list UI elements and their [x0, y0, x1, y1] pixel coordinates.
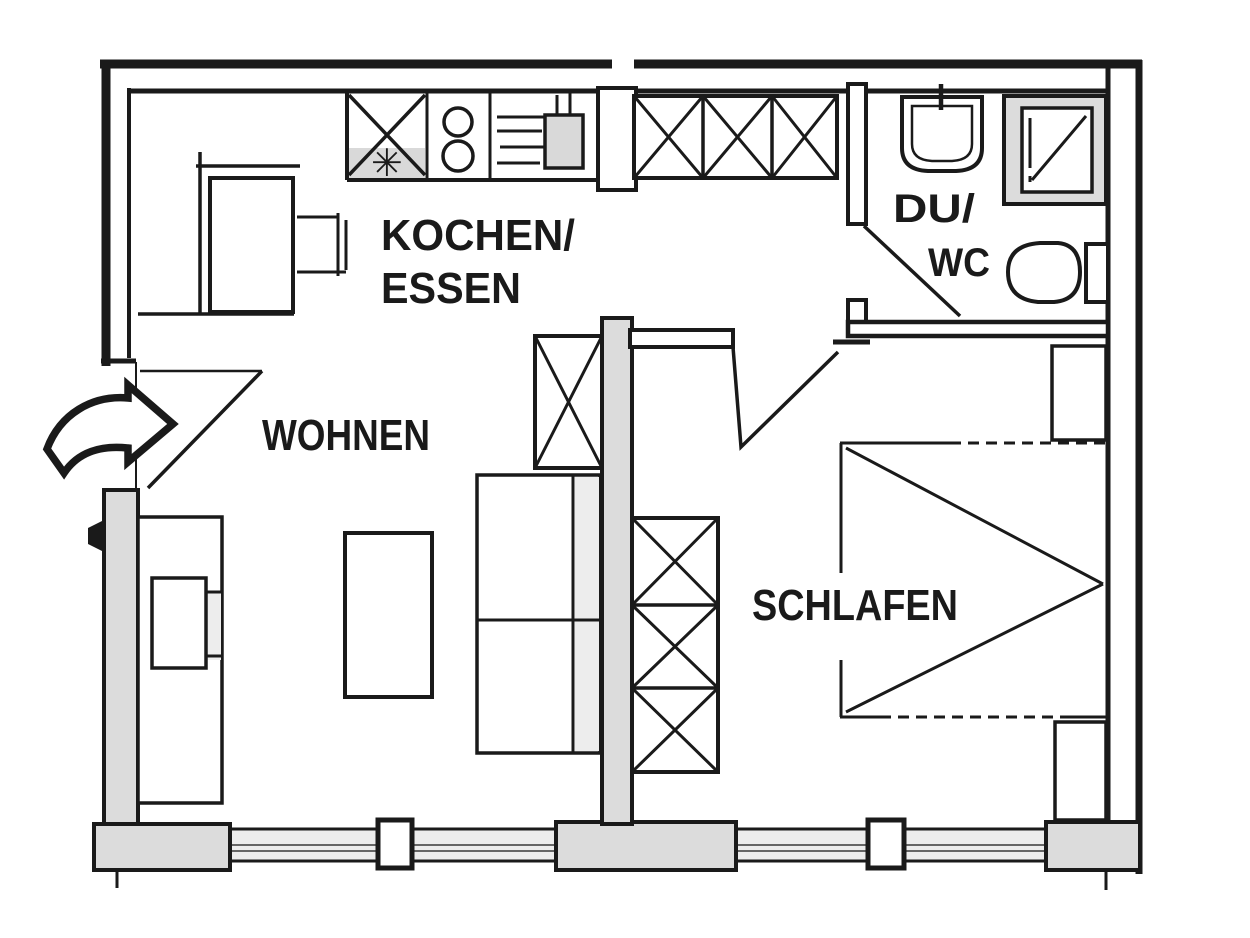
- room-label-bathroom-line1: DU/: [893, 187, 975, 231]
- room-label-bedroom: SCHLAFEN: [752, 581, 958, 630]
- coffee-table: [345, 533, 432, 697]
- room-label-kitchen-line1: KOCHEN/: [381, 211, 575, 260]
- bedroom-wardrobe-crossed: [632, 518, 718, 772]
- window-mullion: [378, 820, 412, 868]
- bottom-wall: [94, 820, 1140, 890]
- tv: [152, 578, 206, 668]
- floorplan-svg: ✳: [0, 0, 1250, 938]
- room-label-kitchen-line2: ESSEN: [381, 264, 521, 313]
- room-label-living: WOHNEN: [262, 411, 430, 460]
- double-bed: [840, 443, 1106, 717]
- dining-chair: [297, 213, 346, 276]
- wall-marker: [88, 520, 104, 552]
- dining-area: [138, 152, 346, 314]
- sink-star-symbol: ✳: [371, 143, 403, 185]
- hall-wardrobe-crossed: [634, 96, 837, 178]
- door-swing: [733, 347, 838, 447]
- wall-pier: [556, 822, 736, 870]
- sink-unit: ✳: [349, 95, 425, 185]
- kitchen-basin: [497, 93, 583, 168]
- dining-table: [210, 178, 293, 312]
- shower: [1004, 96, 1106, 204]
- entrance-arrow: [47, 385, 173, 473]
- tv-sideboard: [138, 517, 222, 803]
- nightstand: [1052, 346, 1106, 440]
- window-mullion: [868, 820, 904, 868]
- living-wardrobe-crossed: [535, 336, 602, 468]
- kitchen-counter: ✳: [347, 92, 598, 185]
- room-label-bathroom-line2: WC: [928, 241, 990, 285]
- washbasin: [902, 84, 982, 171]
- nightstand: [1055, 722, 1106, 820]
- sofa: [477, 475, 600, 753]
- lower-left-wall: [88, 490, 138, 824]
- bedroom-door: [630, 330, 838, 447]
- partition-wall: [602, 318, 632, 824]
- toilet: [1008, 243, 1108, 302]
- cooktop-burners: [443, 108, 473, 171]
- floorplan-page: ✳: [0, 0, 1250, 938]
- kitchen-wall-stub: [598, 88, 636, 190]
- wall-pier: [94, 824, 230, 870]
- wall-pier: [1046, 822, 1140, 870]
